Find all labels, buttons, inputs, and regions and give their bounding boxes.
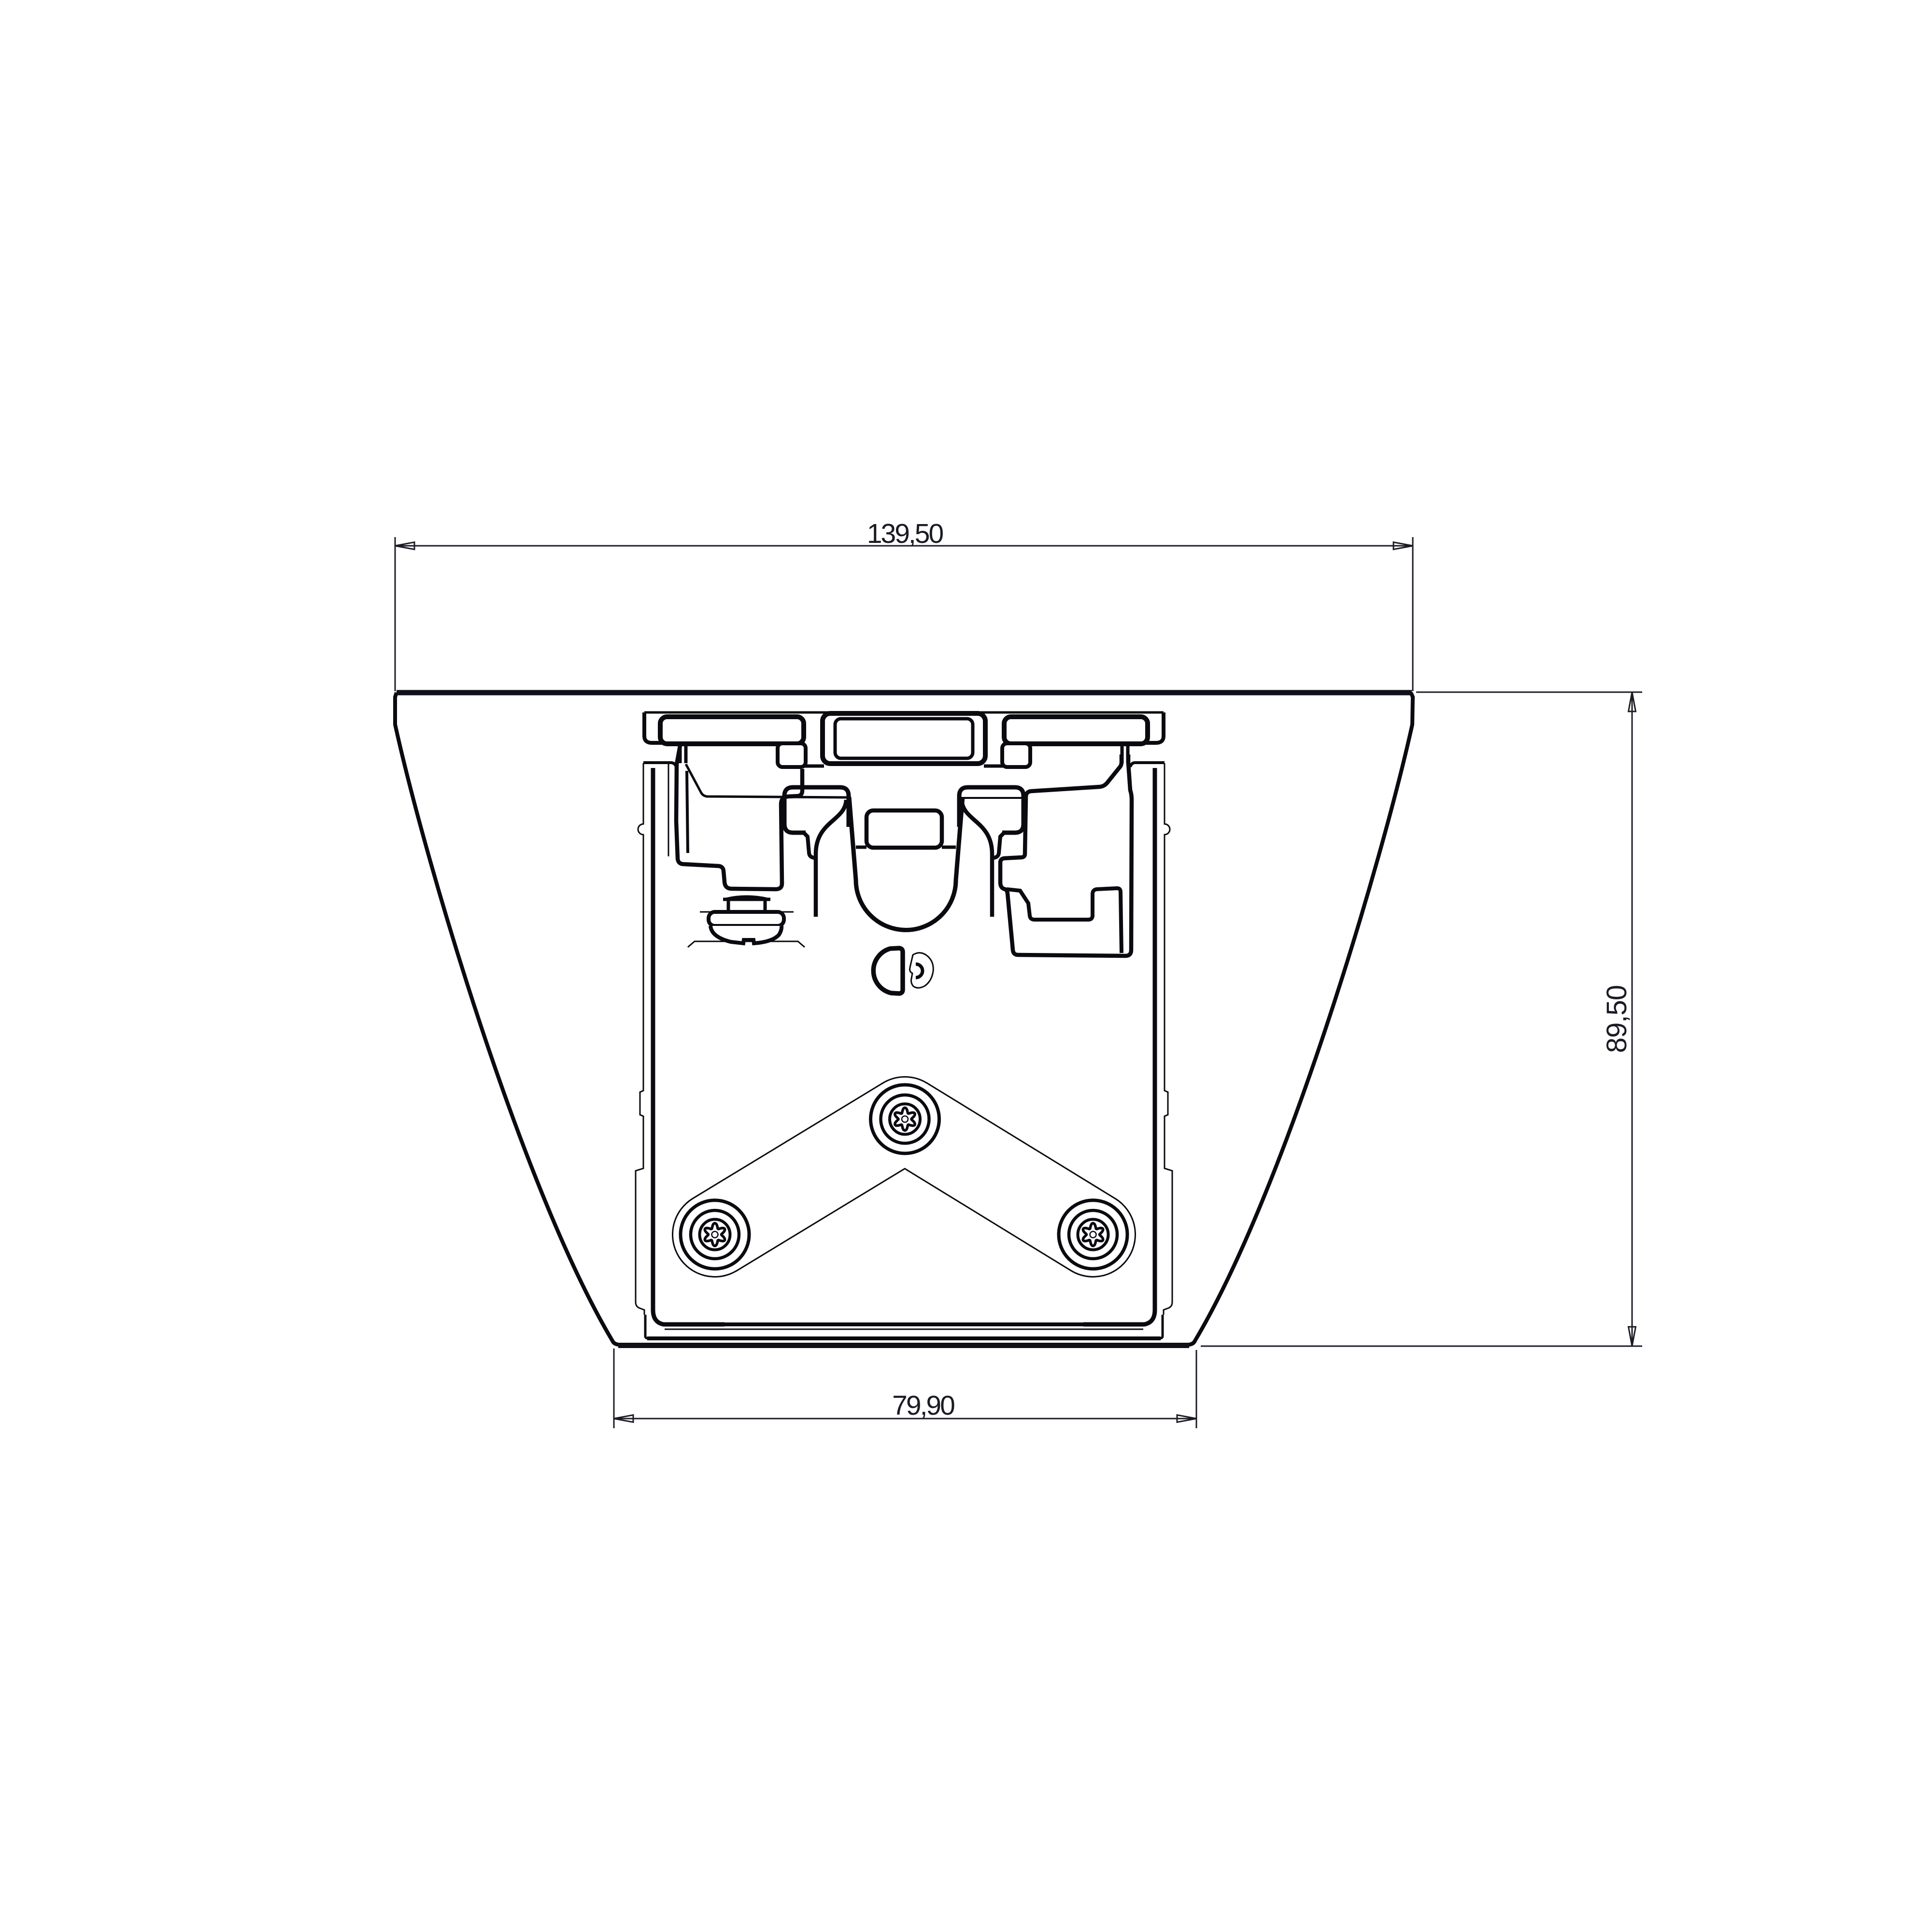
svg-text:139,50: 139,50 xyxy=(867,518,943,549)
svg-text:89,50: 89,50 xyxy=(1601,985,1633,1053)
svg-text:79,90: 79,90 xyxy=(892,1390,954,1421)
